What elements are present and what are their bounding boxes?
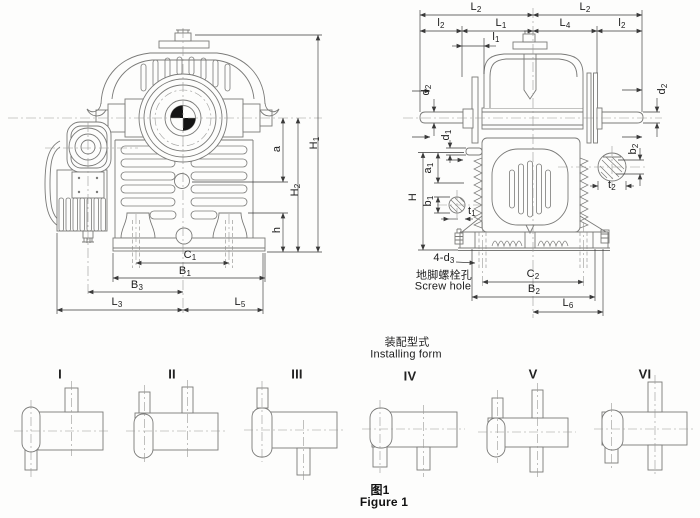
dim-label-d2-right: d2: [657, 84, 669, 95]
dim-label-l2-right: l2: [618, 18, 625, 30]
dim-label-l2-cap-right: L2: [580, 2, 591, 14]
dim-label-l6: L6: [563, 298, 574, 310]
dim-label-4-d3: 4-d3: [433, 253, 454, 265]
dim-label-l2-cap-left: L2: [471, 2, 482, 14]
technical-drawing: [0, 0, 700, 518]
installing-form-1-label: I: [58, 368, 62, 381]
dim-label-a1: a1: [423, 163, 435, 174]
installing-form-5-label: V: [529, 368, 538, 381]
dim-label-c2: C2: [527, 269, 540, 281]
figure-caption-en: Figure 1: [360, 496, 408, 508]
dim-label-l2-left: l2: [437, 18, 444, 30]
dim-label-d2-left: d2: [421, 85, 433, 96]
installing-form-6-drawing: [602, 382, 687, 470]
dim-label-b2-cap: B2: [528, 284, 540, 296]
installing-forms-drawings: [22, 382, 687, 475]
installing-form-4-drawing: [370, 408, 457, 470]
installing-forms-centerlines: [14, 375, 696, 482]
installing-form-title-en: Installing form: [370, 350, 441, 361]
installing-form-title-zh: 装配型式: [385, 338, 430, 349]
dim-label-l1-small: l1: [492, 32, 499, 44]
dim-label-b3: B3: [131, 280, 143, 292]
dim-label-b2: b2: [628, 144, 640, 155]
dim-label-l5: L5: [235, 297, 246, 309]
dim-label-l3: L3: [112, 297, 123, 309]
dim-label-t2: t2: [608, 180, 616, 192]
side-view-drawing: [420, 30, 643, 268]
installing-form-2-label: II: [168, 368, 176, 381]
installing-form-3-drawing: [252, 388, 337, 475]
dim-label-h-cap: H: [408, 193, 420, 201]
screw-hole-note-en: Screw hole: [415, 282, 471, 293]
dim-label-h1: H1: [309, 137, 321, 150]
dim-label-h2: H2: [290, 184, 302, 197]
installing-form-5-drawing: [487, 390, 568, 472]
figure-1-technical-drawing: a H2 h H1 C1 B1 B3 L3 L5 L2 L2 l2 L1 L4 …: [0, 0, 700, 518]
installing-form-3-label: III: [291, 368, 302, 381]
dim-label-t1: t1: [468, 206, 476, 218]
dim-label-l4: L4: [560, 18, 571, 30]
dim-label-a: a: [272, 146, 284, 152]
dim-label-b1-front: B1: [179, 266, 191, 278]
dim-label-h-small: h: [272, 227, 284, 233]
installing-form-6-label: VI: [639, 368, 652, 381]
dim-label-d1: d1: [441, 130, 453, 141]
dim-label-l1-cap: L1: [496, 18, 507, 30]
front-view-drawing: [45, 29, 279, 268]
dim-label-b1-small: b1: [423, 196, 435, 207]
installing-form-1-drawing: [22, 388, 103, 470]
dim-label-c1: C1: [184, 250, 197, 262]
installing-form-4-label: IV: [404, 370, 417, 383]
installing-form-2-drawing: [134, 387, 218, 458]
